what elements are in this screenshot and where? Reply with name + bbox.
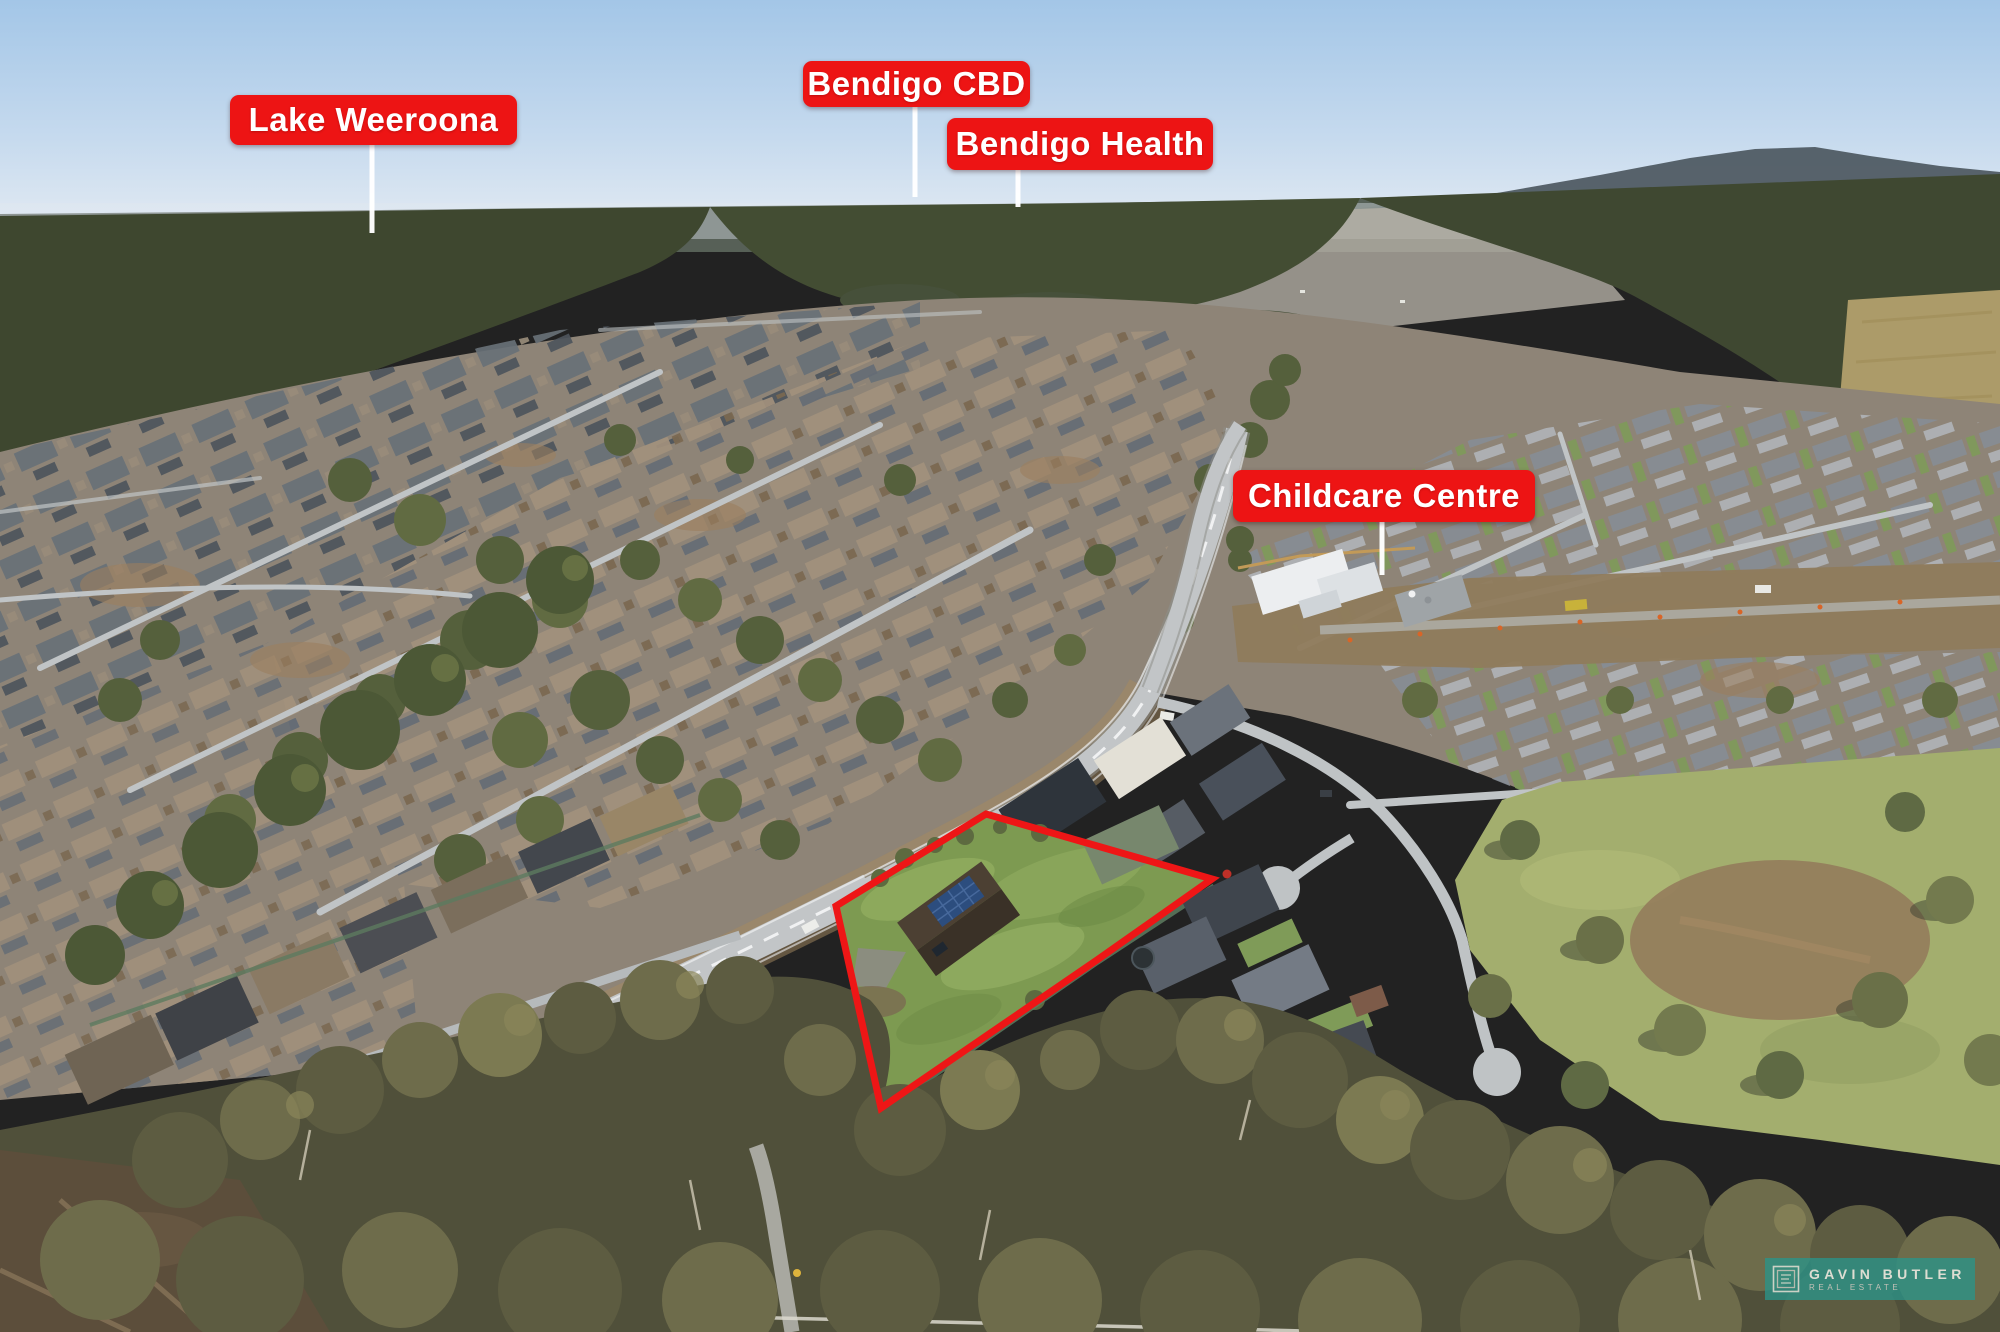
aerial-photo-canvas: Lake Weeroona Bendigo CBD Bendigo Health… [0, 0, 2000, 1332]
label-lake-weeroona: Lake Weeroona [230, 95, 517, 145]
property-boundary-outline [836, 814, 1212, 1108]
watermark-agency-name: GAVIN BUTLER [1809, 1267, 1966, 1281]
annotation-overlay [0, 0, 2000, 1332]
watermark-agency-tagline: REAL ESTATE [1809, 1284, 1966, 1292]
agency-watermark: GAVIN BUTLER REAL ESTATE [1765, 1258, 1975, 1300]
label-childcare-centre: Childcare Centre [1233, 470, 1535, 522]
gb-monogram-icon [1772, 1265, 1800, 1293]
label-bendigo-health: Bendigo Health [947, 118, 1213, 170]
label-bendigo-cbd: Bendigo CBD [803, 61, 1030, 107]
